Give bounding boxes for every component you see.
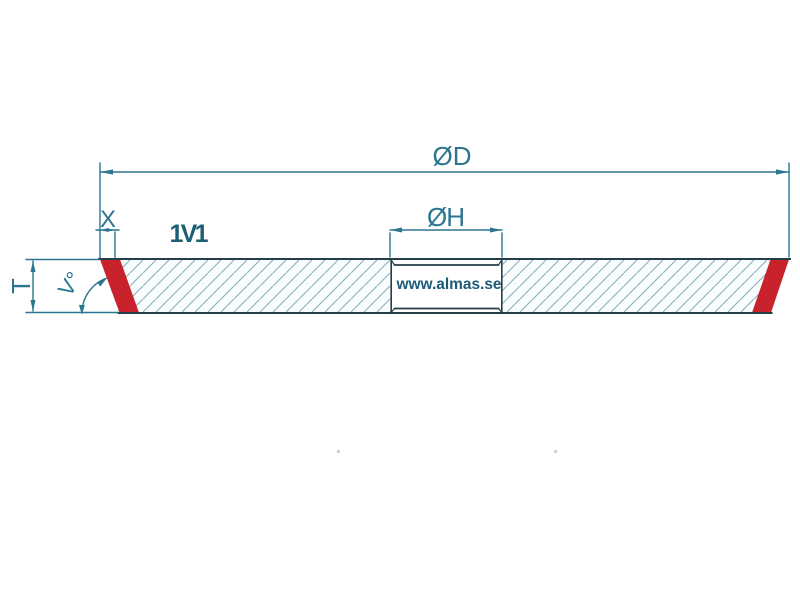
edge-width-label: X bbox=[100, 206, 116, 233]
bevel-angle-arc-top-arrow-icon bbox=[97, 278, 107, 287]
grinding-wheel-technical-drawing: ØD ØH X 1V1 T V° www.almas.se bbox=[0, 0, 800, 600]
thickness-top-arrow-icon bbox=[31, 261, 36, 273]
watermark-text: www.almas.se bbox=[396, 276, 502, 293]
artifact-dot-right bbox=[554, 450, 557, 453]
artifact-dot-left bbox=[337, 450, 340, 453]
outer-diameter-label: ØD bbox=[433, 141, 472, 171]
outer-diameter-right-arrow-icon bbox=[776, 169, 789, 174]
thickness-label: T bbox=[6, 278, 36, 294]
hole-diameter-right-arrow-icon bbox=[490, 228, 502, 233]
wheel-type-label: 1V1 bbox=[170, 220, 209, 248]
hole-diameter-label: ØH bbox=[427, 202, 465, 232]
thickness-bottom-arrow-icon bbox=[31, 300, 36, 312]
bevel-angle-arc bbox=[82, 278, 107, 313]
bevel-angle-label: V° bbox=[53, 267, 87, 300]
drawing-canvas: ØD ØH X 1V1 T V° www.almas.se bbox=[0, 0, 800, 600]
outer-diameter-left-arrow-icon bbox=[100, 169, 113, 174]
hole-diameter-left-arrow-icon bbox=[390, 228, 402, 233]
